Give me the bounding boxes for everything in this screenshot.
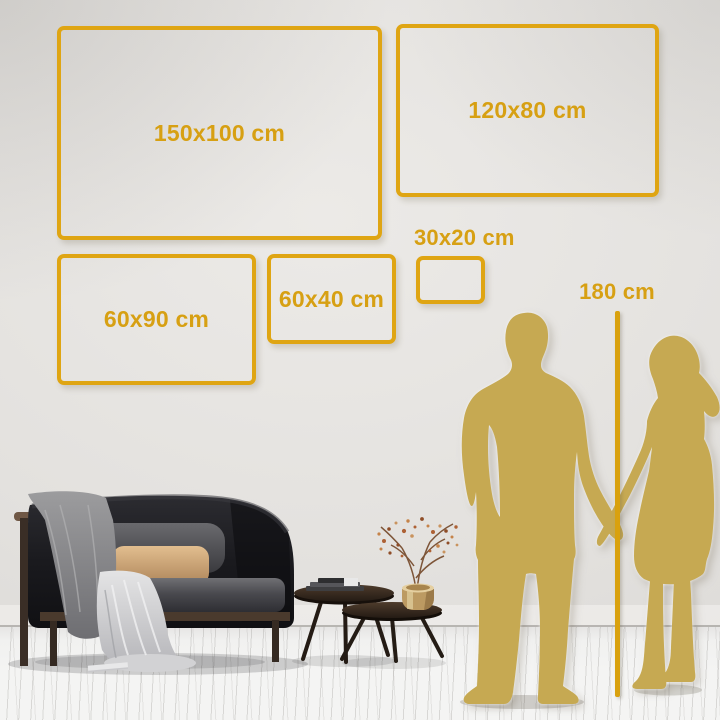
height-ruler-line — [615, 311, 620, 697]
man-silhouette — [462, 313, 623, 704]
size-guide-canvas: 150x100 cm 120x80 cm 60x90 cm 60x40 cm 3… — [0, 0, 720, 720]
couple-silhouettes — [0, 0, 720, 720]
